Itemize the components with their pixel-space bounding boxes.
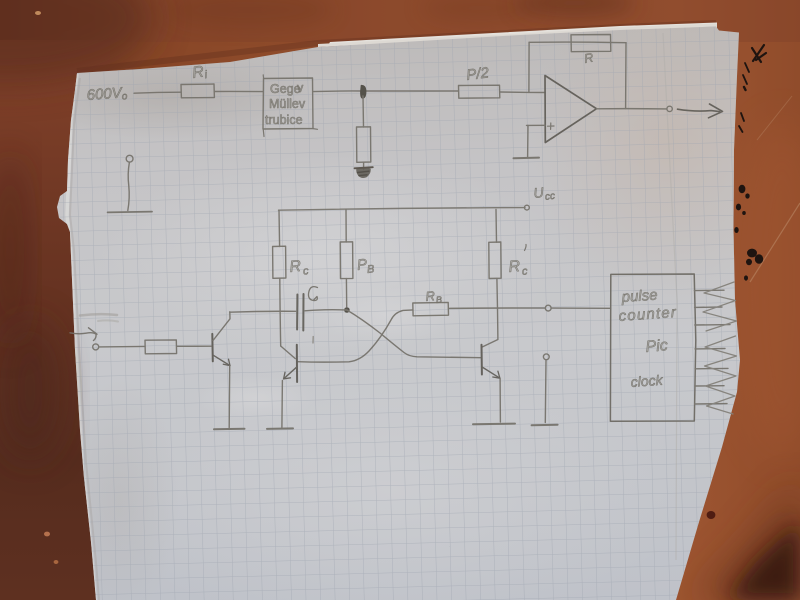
svg-text:Müllev: Müllev [269,97,306,111]
svg-text:B: B [435,294,442,305]
svg-text:clock: clock [630,372,664,390]
svg-text:B: B [366,263,375,276]
svg-text:600V: 600V [86,84,124,104]
svg-text:R: R [508,258,521,276]
svg-text:R: R [425,288,436,304]
svg-text:Pic: Pic [645,337,669,356]
svg-text:v: v [297,81,304,95]
svg-text:pulse: pulse [620,287,658,307]
svg-text:P/2: P/2 [465,64,490,84]
svg-text:trubice: trubice [265,113,303,127]
svg-text:cc: cc [544,191,555,203]
svg-text:R: R [289,258,303,276]
